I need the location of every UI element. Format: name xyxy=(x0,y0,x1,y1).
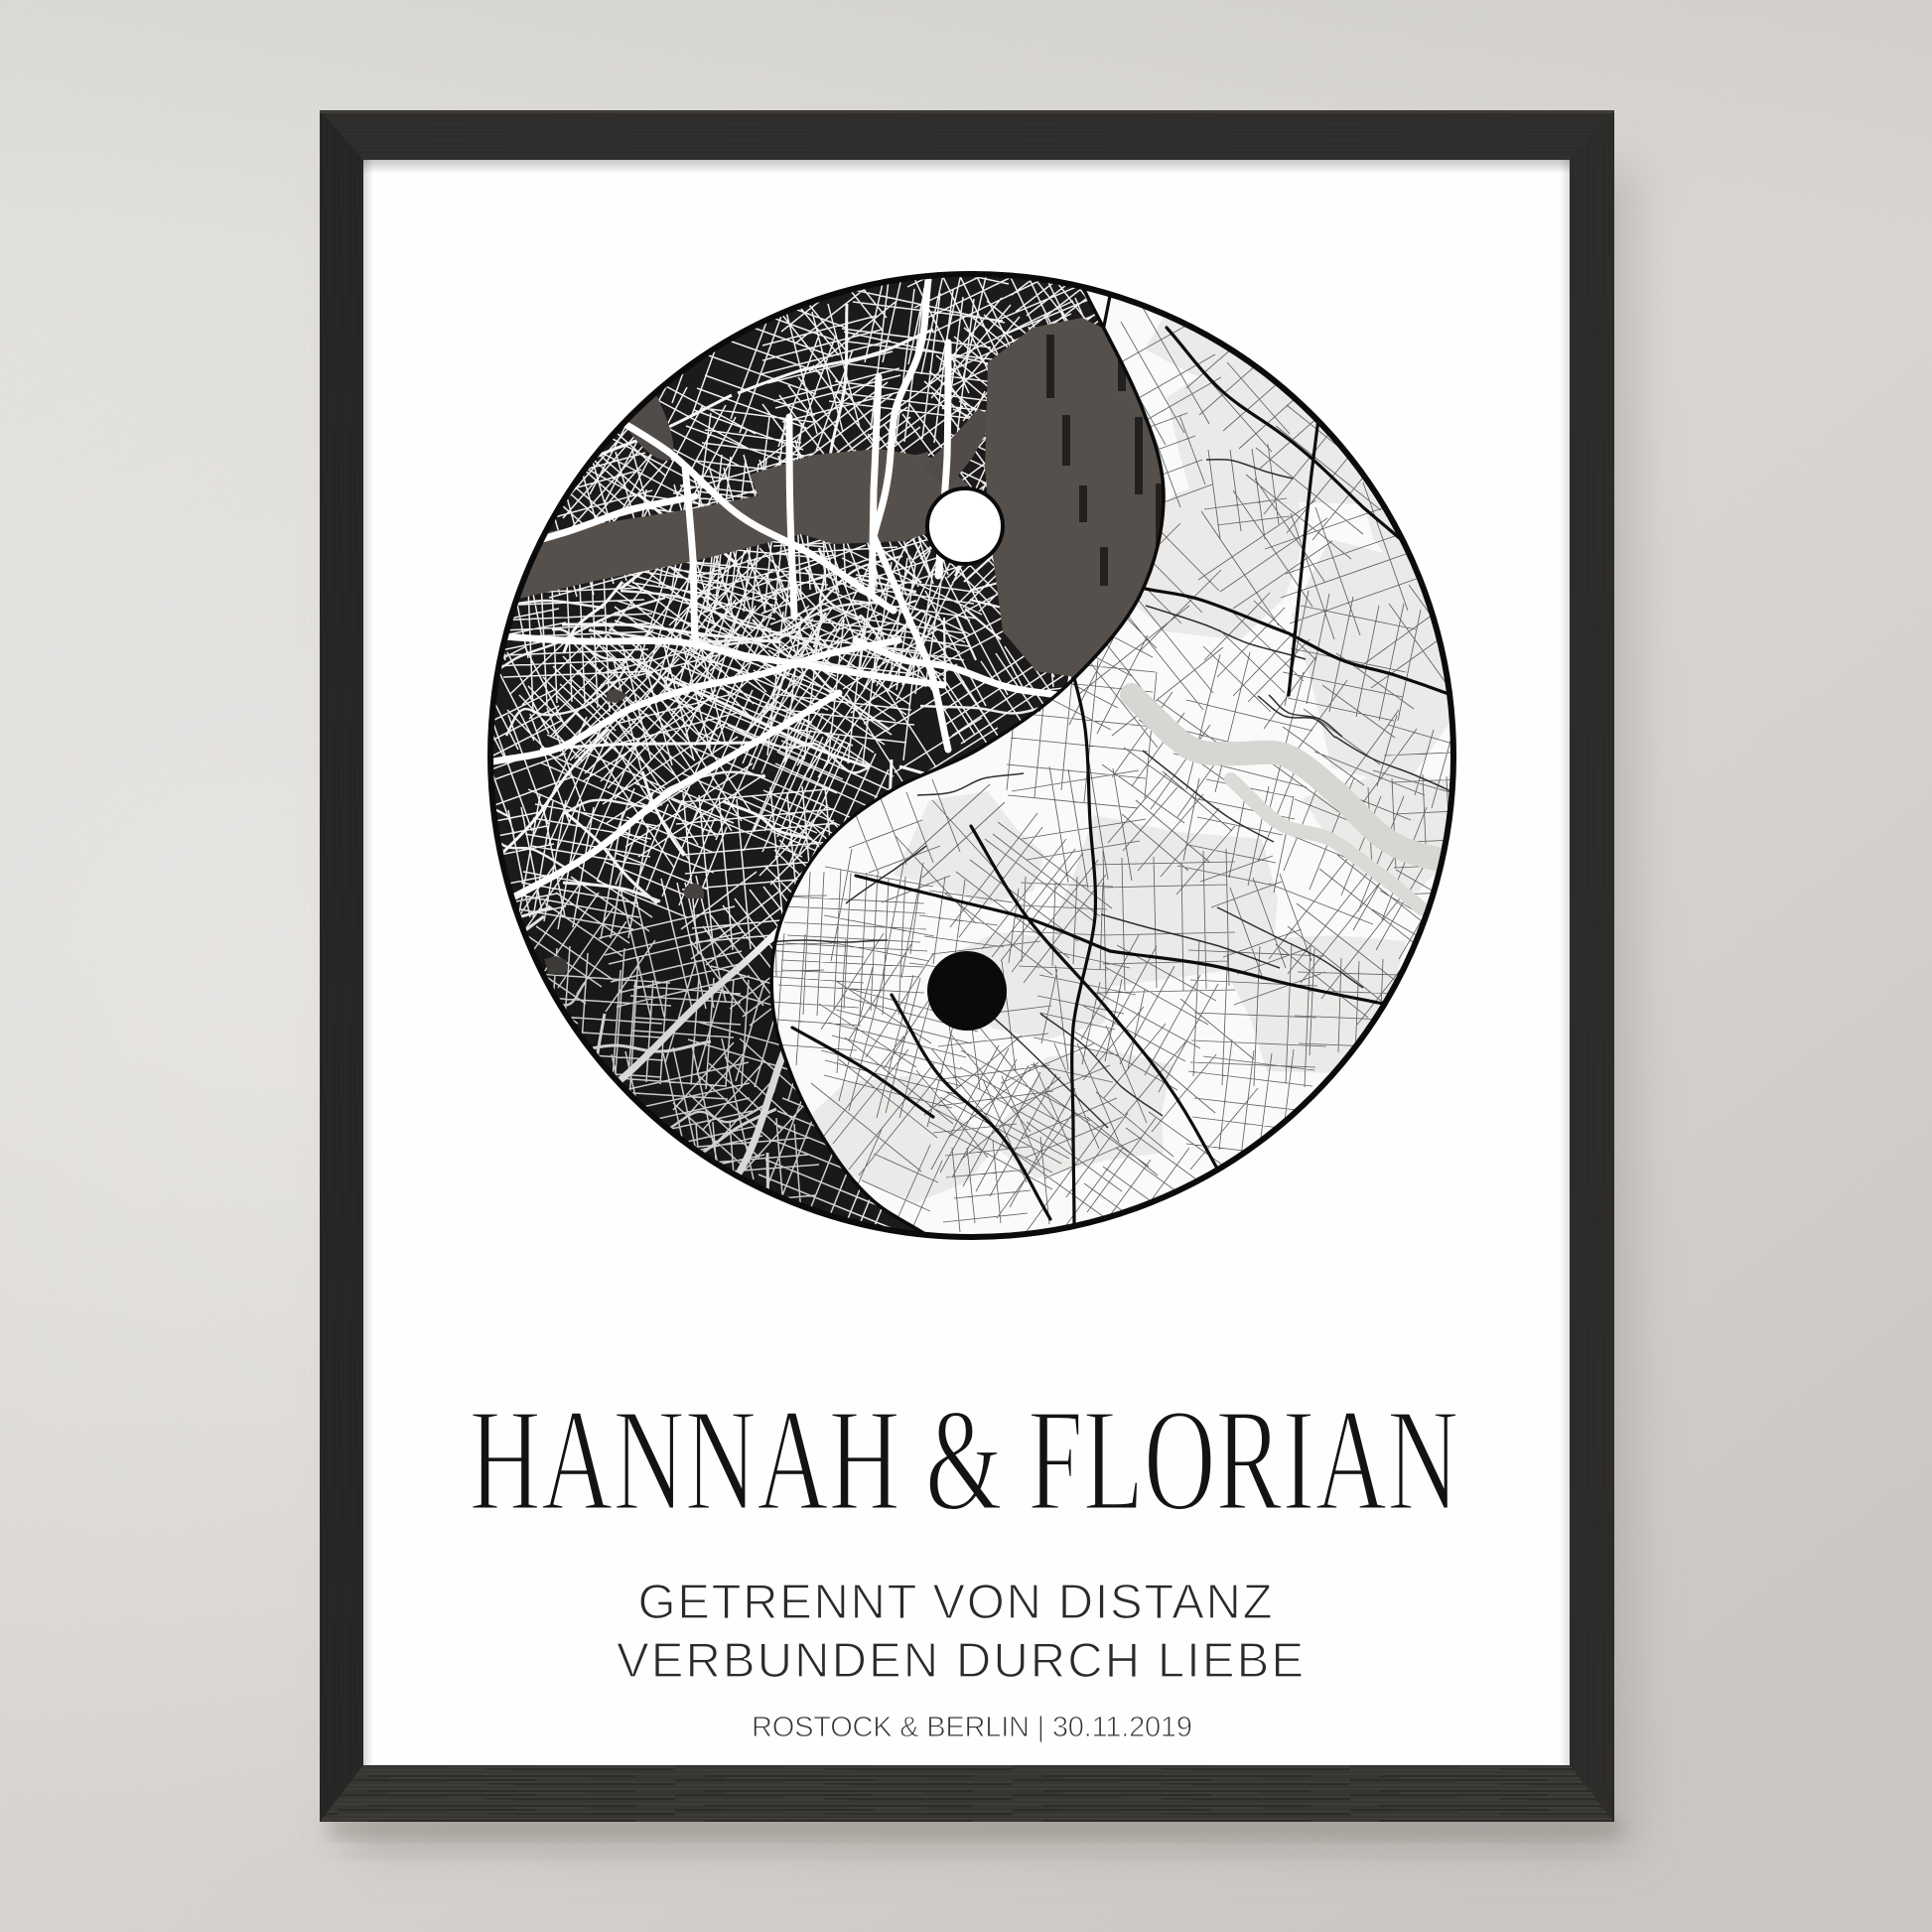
svg-text:HANNAH & FLORIAN: HANNAH & FLORIAN xyxy=(470,1379,1459,1542)
svg-text:ROSTOCK & BERLIN | 30.11.2019: ROSTOCK & BERLIN | 30.11.2019 xyxy=(752,1712,1192,1743)
svg-text:GETRENNT VON DISTANZ: GETRENNT VON DISTANZ xyxy=(638,1576,1273,1629)
